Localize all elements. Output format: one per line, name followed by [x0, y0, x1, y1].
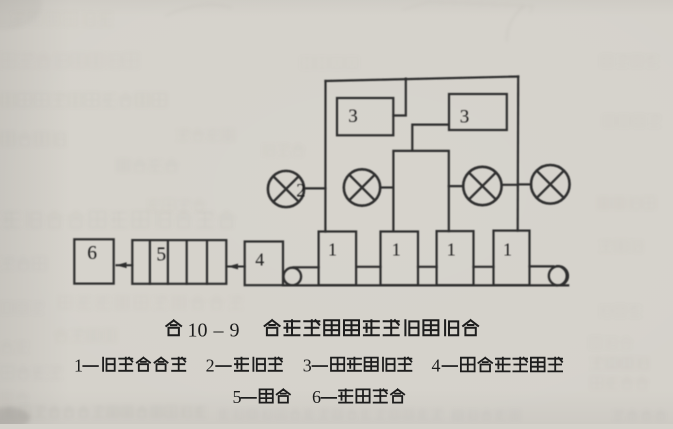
svg-text:2: 2 — [206, 355, 215, 375]
svg-text:6: 6 — [312, 387, 321, 407]
svg-text:5: 5 — [233, 387, 242, 407]
svg-text:3: 3 — [460, 107, 470, 128]
svg-text:1: 1 — [392, 240, 401, 260]
svg-text:2: 2 — [296, 181, 305, 201]
svg-text:10–9: 10–9 — [188, 319, 240, 341]
svg-text:1: 1 — [447, 240, 456, 260]
svg-text:5: 5 — [156, 244, 166, 265]
svg-text:3: 3 — [303, 355, 312, 375]
svg-text:3: 3 — [348, 106, 358, 127]
svg-text:6: 6 — [87, 243, 97, 264]
svg-text:1: 1 — [503, 240, 512, 260]
svg-text:4: 4 — [255, 249, 264, 269]
svg-text:1: 1 — [74, 355, 83, 375]
svg-text:1: 1 — [328, 239, 337, 259]
svg-text:4: 4 — [432, 355, 441, 375]
